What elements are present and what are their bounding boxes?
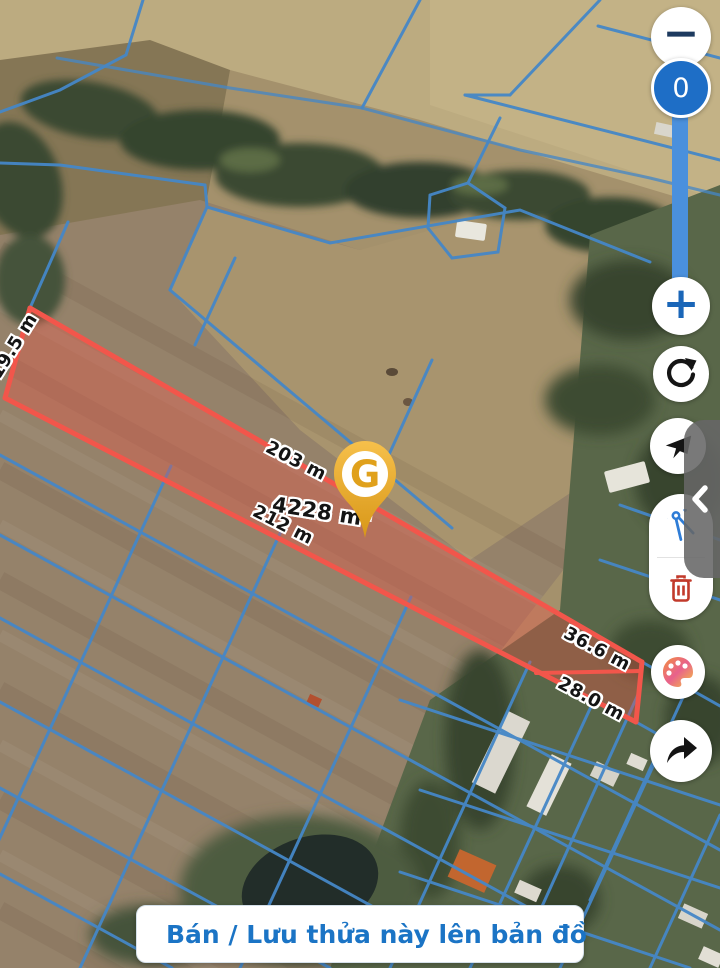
save-parcel-button-label: Bán / Lưu thửa này lên bản đồ — [166, 920, 587, 949]
share-button[interactable] — [650, 720, 712, 782]
plus-icon: + — [663, 278, 700, 329]
rotate-clockwise-icon — [664, 357, 698, 391]
rotate-map-button[interactable] — [653, 346, 709, 402]
sell-save-parcel-button[interactable]: G Bán / Lưu thửa này lên bản đồ — [136, 905, 584, 963]
zoom-level-badge[interactable]: 0 — [651, 58, 711, 118]
palette-icon — [660, 654, 696, 690]
zoom-in-button[interactable]: + — [652, 277, 710, 335]
map-style-button[interactable] — [651, 645, 705, 699]
trash-icon — [668, 574, 694, 604]
chevron-left-icon — [689, 482, 711, 516]
drawer-handle[interactable] — [684, 420, 720, 578]
zoom-level-value: 0 — [672, 73, 689, 104]
map-screen: 19.5 m 203 m 212 m 4228 m² 36.6 m 28.0 m… — [0, 0, 720, 968]
share-arrow-icon — [662, 734, 700, 768]
parcel-marker-pin[interactable]: G — [329, 438, 401, 542]
minus-icon: − — [663, 8, 700, 59]
pin-logo-letter: G — [350, 453, 380, 496]
